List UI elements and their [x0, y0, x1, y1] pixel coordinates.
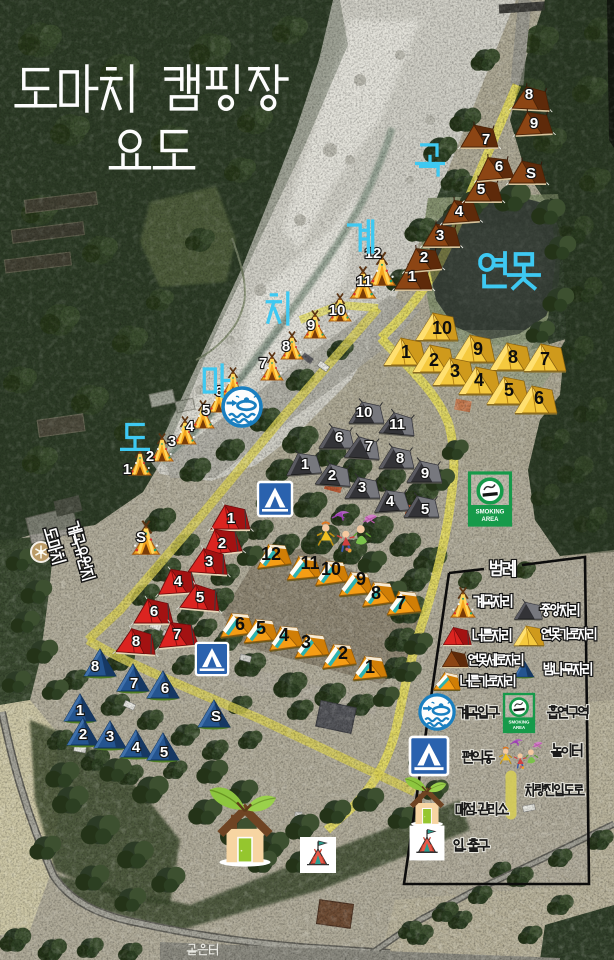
svg-text:S: S [136, 529, 146, 546]
svg-text:1: 1 [365, 657, 375, 677]
svg-text:10: 10 [321, 559, 341, 579]
svg-text:1: 1 [227, 510, 235, 527]
svg-text:8: 8 [525, 86, 533, 103]
svg-text:6: 6 [150, 603, 158, 620]
svg-text:8: 8 [396, 450, 404, 467]
svg-text:3: 3 [168, 433, 176, 450]
svg-text:5: 5 [477, 181, 485, 198]
svg-text:7: 7 [365, 438, 373, 455]
svg-text:9: 9 [473, 339, 483, 359]
svg-text:2: 2 [429, 350, 439, 370]
svg-text:2: 2 [79, 726, 87, 743]
svg-text:3: 3 [436, 227, 444, 244]
svg-text:S: S [526, 165, 536, 182]
svg-text:5: 5 [202, 402, 210, 419]
svg-text:4: 4 [186, 418, 195, 435]
svg-text:4: 4 [386, 493, 395, 510]
svg-text:8: 8 [371, 583, 381, 603]
svg-text:4: 4 [474, 370, 484, 390]
svg-text:1: 1 [408, 268, 416, 285]
svg-text:1: 1 [301, 456, 309, 473]
svg-text:10: 10 [356, 404, 373, 421]
svg-text:7: 7 [259, 355, 267, 372]
svg-text:6: 6 [335, 429, 343, 446]
svg-text:2: 2 [328, 467, 336, 484]
svg-text:7: 7 [482, 131, 490, 148]
svg-text:1: 1 [76, 702, 84, 719]
svg-text:2: 2 [218, 535, 226, 552]
svg-text:6: 6 [235, 614, 245, 634]
svg-text:9: 9 [421, 465, 429, 482]
svg-text:11: 11 [389, 416, 405, 433]
svg-text:8: 8 [91, 658, 99, 675]
svg-text:11: 11 [356, 273, 372, 290]
svg-text:10: 10 [329, 302, 346, 319]
svg-text:5: 5 [196, 589, 204, 606]
svg-text:7: 7 [130, 675, 138, 692]
svg-text:6: 6 [534, 388, 544, 408]
svg-text:8: 8 [508, 347, 518, 367]
svg-text:5: 5 [160, 744, 168, 761]
svg-text:2: 2 [420, 249, 428, 266]
svg-text:11: 11 [300, 553, 319, 573]
svg-text:9: 9 [307, 317, 315, 334]
svg-text:5: 5 [504, 380, 514, 400]
svg-text:1: 1 [401, 342, 411, 362]
svg-text:4: 4 [455, 203, 464, 220]
svg-text:2: 2 [338, 643, 348, 663]
svg-text:4: 4 [132, 739, 141, 756]
svg-text:4: 4 [174, 573, 183, 590]
svg-text:3: 3 [450, 361, 460, 381]
svg-text:3: 3 [205, 553, 213, 570]
svg-text:7: 7 [540, 349, 550, 369]
svg-text:6: 6 [495, 158, 503, 175]
svg-text:3: 3 [358, 479, 366, 496]
svg-text:7: 7 [173, 626, 181, 643]
svg-text:6: 6 [161, 680, 169, 697]
svg-text:S: S [211, 708, 221, 725]
svg-text:10: 10 [432, 318, 452, 338]
svg-text:5: 5 [256, 618, 266, 638]
svg-text:9: 9 [530, 115, 538, 132]
svg-text:7: 7 [396, 593, 406, 613]
svg-text:12: 12 [261, 544, 281, 564]
svg-text:5: 5 [421, 501, 429, 518]
svg-text:1: 1 [123, 461, 131, 478]
svg-text:8: 8 [282, 338, 290, 355]
svg-text:4: 4 [279, 625, 289, 645]
svg-text:9: 9 [356, 569, 366, 589]
svg-text:3: 3 [301, 632, 311, 652]
svg-text:8: 8 [132, 633, 140, 650]
svg-text:3: 3 [106, 728, 114, 745]
